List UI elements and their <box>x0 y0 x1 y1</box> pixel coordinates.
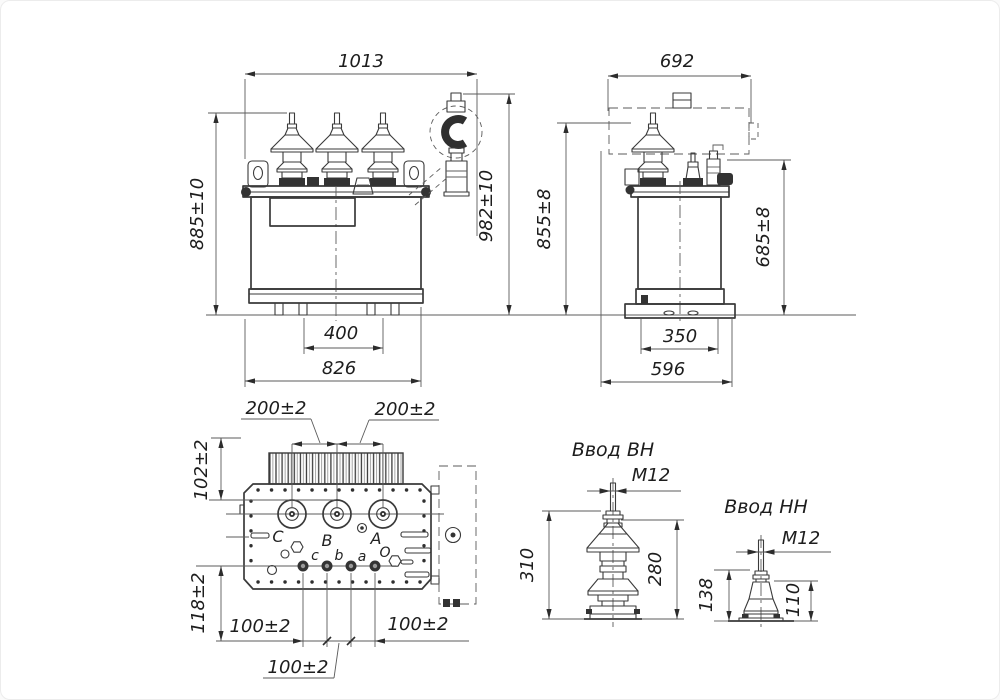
dim-lv-spacing-mid: 100±2 <box>268 657 329 678</box>
lifting-lug <box>404 161 424 187</box>
hv-bushing-a <box>271 113 313 186</box>
dim-hv-total-height: 310 <box>517 548 538 582</box>
dim-fin-depth: 102±2 <box>191 440 212 501</box>
dim-skid-spacing: 400 <box>324 323 358 344</box>
dim-hv-spacing-right: 200±2 <box>375 399 436 420</box>
label-terminal-b: b <box>335 548 344 564</box>
roller <box>421 187 431 197</box>
breather-device <box>446 161 467 192</box>
dim-lv-insulator-height: 110 <box>783 583 804 617</box>
dim-base-width: 826 <box>322 358 356 379</box>
thermometer-icon <box>445 119 465 145</box>
dim-side-overall-width: 692 <box>660 51 694 72</box>
hv-bushing-b <box>316 113 358 186</box>
label-terminal-C: С <box>272 527 284 546</box>
dim-lv-spacing-left: 100±2 <box>230 616 291 637</box>
dim-side-overall-height: 855±8 <box>534 189 555 250</box>
lifting-lug <box>248 161 268 187</box>
hv-bushing-title: Ввод ВН <box>572 439 654 461</box>
drain-valve <box>641 295 648 304</box>
lv-bushing-title: Ввод НН <box>724 496 808 518</box>
label-terminal-B: В <box>322 531 333 550</box>
top-view: 200±2 200±2 102±2 118±2 100±2 100±2 100±… <box>188 398 476 678</box>
dim-lv-total-height: 138 <box>696 578 717 612</box>
nameplate <box>270 198 355 226</box>
hv-bushing-side <box>632 113 674 186</box>
cover-bracket <box>625 169 639 185</box>
dim-front-overall-width: 1013 <box>338 51 384 72</box>
hv-bushing-c <box>362 113 404 186</box>
roller <box>241 187 251 197</box>
transformer-drawing: 1013 885±10 982±10 400 826 <box>1 1 1000 700</box>
detail-circle <box>430 106 482 158</box>
side-view: 692 855±8 685±8 350 596 <box>534 51 791 387</box>
hv-bushing-thread: М12 <box>632 465 670 486</box>
lv-bushing-thread: М12 <box>782 528 820 549</box>
tank-body-side <box>638 197 721 289</box>
hex-nut <box>389 556 401 566</box>
dim-side-tank-height: 685±8 <box>753 207 774 268</box>
dim-side-base-width: 596 <box>651 359 685 380</box>
dim-lv-row-offset: 118±2 <box>188 573 209 634</box>
dim-lv-spacing-right: 100±2 <box>388 614 449 635</box>
label-terminal-c: с <box>311 548 319 564</box>
label-terminal-0: О <box>379 545 390 561</box>
dim-side-base-inner: 350 <box>663 326 697 347</box>
attachment-outline-dashed <box>439 466 476 604</box>
radiator-outline-dashed <box>609 108 749 154</box>
dim-hv-spacing-left: 200±2 <box>246 398 307 419</box>
hex-nut <box>291 542 303 552</box>
hv-bushing-detail: Ввод ВН М12 310 <box>517 439 684 627</box>
dim-front-overall-height: 885±10 <box>187 178 208 250</box>
label-terminal-a: а <box>358 549 367 565</box>
lv-bushing-detail: Ввод НН М12 138 110 <box>696 496 831 629</box>
front-view: 1013 885±10 982±10 400 826 <box>187 51 515 387</box>
dim-hv-insulator-height: 280 <box>645 552 666 586</box>
technical-drawing-page: 1013 885±10 982±10 400 826 <box>0 0 1000 700</box>
dim-front-height-breather: 982±10 <box>476 170 497 242</box>
